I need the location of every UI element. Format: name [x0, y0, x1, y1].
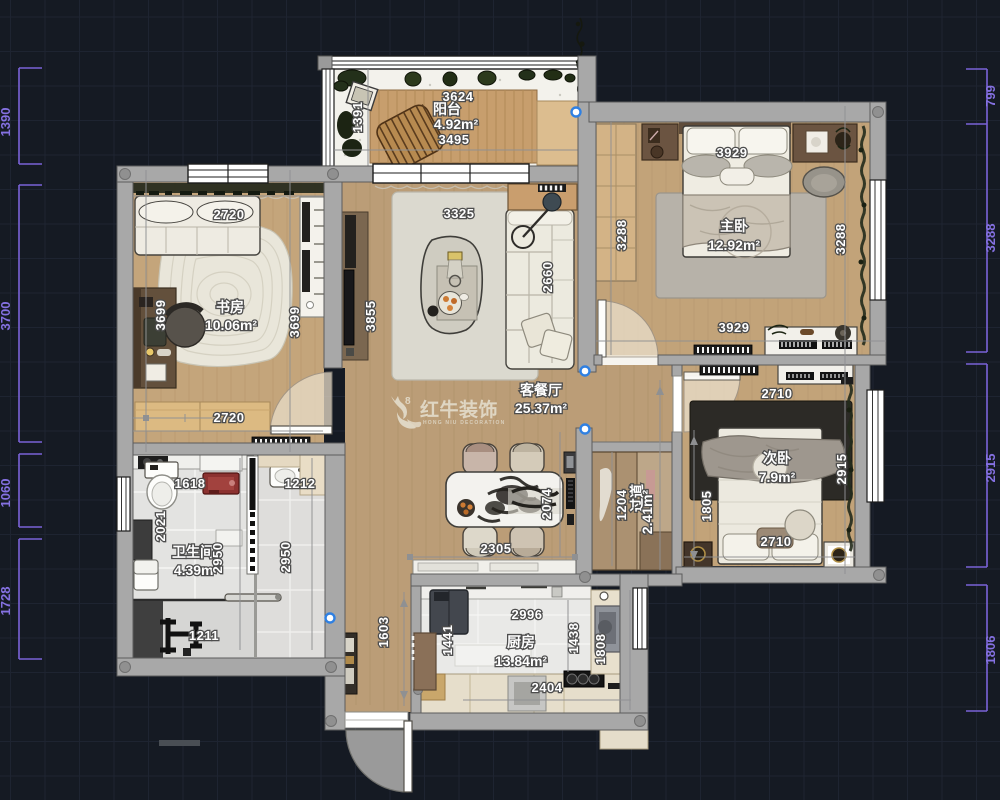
svg-text:3700: 3700	[0, 302, 13, 331]
svg-text:3495: 3495	[439, 132, 470, 147]
svg-text:7.9m²: 7.9m²	[759, 469, 796, 485]
svg-text:3699: 3699	[287, 307, 302, 338]
svg-text:1806: 1806	[983, 636, 998, 665]
svg-text:25.37m²: 25.37m²	[515, 400, 567, 416]
svg-text:3929: 3929	[717, 145, 748, 160]
svg-text:3699: 3699	[153, 300, 168, 331]
svg-text:1390: 1390	[0, 108, 13, 137]
svg-text:3288: 3288	[833, 224, 848, 255]
svg-text:2915: 2915	[834, 454, 849, 485]
svg-text:2950: 2950	[278, 542, 293, 573]
svg-text:2021: 2021	[153, 511, 168, 542]
svg-text:2660: 2660	[540, 262, 555, 293]
svg-text:2950: 2950	[210, 543, 225, 574]
svg-text:2720: 2720	[214, 207, 245, 222]
svg-text:客餐厅: 客餐厅	[519, 382, 562, 398]
svg-text:2710: 2710	[761, 534, 792, 549]
svg-text:红牛装饰: 红牛装饰	[420, 398, 498, 421]
svg-text:4.92m²: 4.92m²	[434, 116, 479, 132]
svg-text:3288: 3288	[614, 220, 629, 251]
svg-text:2074: 2074	[539, 488, 554, 519]
svg-text:1438: 1438	[566, 623, 581, 654]
svg-text:799: 799	[983, 85, 998, 107]
svg-text:主卧: 主卧	[720, 218, 748, 234]
svg-text:1212: 1212	[285, 476, 316, 491]
svg-text:1204: 1204	[614, 489, 629, 520]
svg-text:10.06m²: 10.06m²	[205, 317, 257, 333]
svg-text:3929: 3929	[719, 320, 750, 335]
svg-text:1603: 1603	[376, 617, 391, 648]
svg-text:阳台: 阳台	[433, 101, 461, 117]
svg-text:1060: 1060	[0, 479, 13, 508]
svg-text:厨房: 厨房	[507, 634, 535, 650]
svg-text:1441: 1441	[440, 625, 455, 656]
svg-text:2720: 2720	[214, 410, 245, 425]
svg-text:2305: 2305	[481, 541, 512, 556]
svg-text:1728: 1728	[0, 587, 13, 616]
svg-text:2915: 2915	[983, 454, 998, 483]
svg-text:2.41m²: 2.41m²	[639, 489, 655, 534]
svg-text:3325: 3325	[444, 206, 475, 221]
svg-text:2996: 2996	[512, 607, 543, 622]
svg-text:1211: 1211	[189, 628, 219, 643]
svg-text:1391: 1391	[350, 102, 365, 133]
svg-text:13.84m²: 13.84m²	[495, 653, 547, 669]
svg-text:3288: 3288	[983, 224, 998, 253]
svg-text:8: 8	[405, 396, 411, 407]
svg-text:2404: 2404	[532, 680, 563, 695]
svg-text:12.92m²: 12.92m²	[708, 237, 760, 253]
svg-text:书房: 书房	[216, 299, 244, 315]
svg-text:1808: 1808	[593, 634, 608, 665]
svg-text:1618: 1618	[175, 476, 206, 491]
svg-text:3855: 3855	[363, 301, 378, 332]
svg-text:2710: 2710	[762, 386, 793, 401]
svg-text:1805: 1805	[699, 491, 714, 522]
svg-text:次卧: 次卧	[763, 450, 791, 466]
svg-text:HONG NIU DECORATION: HONG NIU DECORATION	[423, 420, 505, 426]
svg-text:卫生间: 卫生间	[172, 544, 214, 560]
